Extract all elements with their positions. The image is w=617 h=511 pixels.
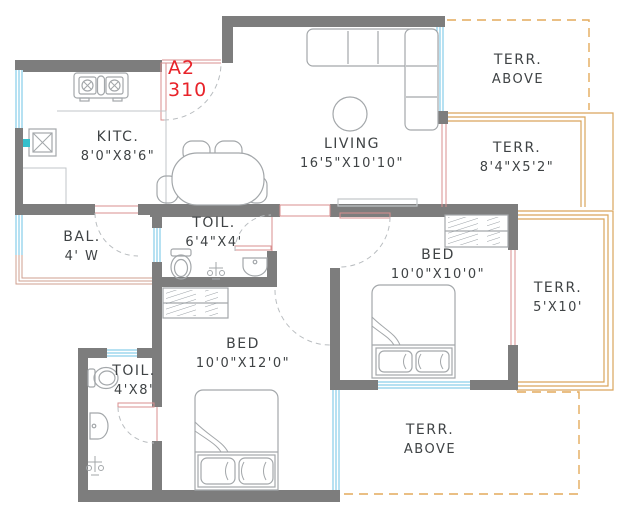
room-label-bed-second: BED 10'0"X10'0" bbox=[391, 247, 485, 283]
passage-opening-frame bbox=[280, 205, 330, 216]
wall-toilet-attached-top-right bbox=[137, 348, 153, 358]
wall-left-upper bbox=[15, 60, 23, 70]
room-name: KITC. bbox=[81, 129, 156, 147]
coffee-table bbox=[333, 97, 367, 131]
toilet-attached-washbasin bbox=[90, 413, 108, 439]
window-kitchen-left bbox=[15, 70, 23, 128]
living-terrace-opening bbox=[442, 124, 446, 207]
bed-master-furniture bbox=[195, 390, 278, 490]
window-toilet-attached-top bbox=[107, 348, 137, 358]
room-name: BED bbox=[391, 247, 485, 265]
window-bed-second-bottom bbox=[378, 381, 470, 389]
wall-living-top bbox=[222, 16, 445, 27]
bed-second-door-arc bbox=[340, 217, 390, 267]
kitchen-stove bbox=[74, 73, 128, 101]
room-dims: 8'0"X8'6" bbox=[81, 149, 156, 165]
dining-table bbox=[157, 141, 267, 205]
room-dims: 6'4"X4' bbox=[185, 235, 242, 251]
wall-bed-second-bottom-right bbox=[470, 380, 518, 390]
room-name: TOIL. bbox=[185, 215, 242, 233]
toilet-common-washbasin bbox=[243, 258, 267, 276]
room-label-terrace-right: TERR. 8'4"X5'2" bbox=[480, 140, 555, 176]
room-name: TOIL. bbox=[112, 363, 155, 381]
room-name: TERR. bbox=[533, 280, 583, 298]
toilet-common-shower-mixer bbox=[208, 262, 225, 279]
wall-toilet-attached-top-left bbox=[80, 348, 107, 358]
bed-second-furniture bbox=[372, 285, 455, 378]
toilet-common-wc bbox=[171, 249, 191, 279]
wall-kitchen-top bbox=[15, 60, 162, 72]
unit-number: 310 bbox=[168, 80, 207, 102]
room-dims: 10'0"X12'0" bbox=[196, 356, 290, 372]
wall-bed-second-bottom-left bbox=[332, 380, 378, 390]
kitchen-sink bbox=[23, 129, 56, 156]
wall-bed-second-left bbox=[330, 268, 340, 390]
wall-toilet-attached-left bbox=[78, 348, 88, 502]
room-label-balcony: BAL. 4' W bbox=[63, 229, 100, 265]
toilet-attached-door-arc bbox=[118, 407, 154, 443]
wall-right-upper bbox=[508, 217, 518, 250]
room-dims: 16'5"X10'10" bbox=[300, 156, 404, 172]
room-label-terrace-side: TERR. 5'X10' bbox=[533, 280, 583, 316]
room-dims: 4' W bbox=[63, 249, 100, 265]
balcony-door-arc bbox=[95, 213, 138, 256]
unit-code: A2 bbox=[168, 58, 207, 80]
terrace-above-bottom-border bbox=[342, 392, 579, 494]
room-dims: ABOVE bbox=[492, 72, 544, 88]
window-hall-central bbox=[152, 228, 162, 262]
room-dims: 4'X8' bbox=[112, 383, 155, 399]
room-name: TERR. bbox=[480, 140, 555, 158]
room-dims: 5'X10' bbox=[533, 300, 583, 316]
wall-toilet-attached-right-lower bbox=[152, 441, 162, 493]
wall-bottom bbox=[78, 490, 340, 502]
unit-label: A2 310 bbox=[168, 58, 207, 102]
wardrobe-common bbox=[163, 288, 228, 318]
room-dims: 10'0"X10'0" bbox=[391, 267, 485, 283]
room-name: BAL. bbox=[63, 229, 100, 247]
window-bed-master-terrace bbox=[332, 390, 341, 490]
room-label-terrace-above-top: TERR. ABOVE bbox=[492, 52, 544, 88]
window-balcony-left bbox=[15, 215, 23, 255]
balcony-door-lintel bbox=[95, 206, 138, 213]
wall-left-lower bbox=[15, 128, 23, 210]
room-dims: 8'4"X5'2" bbox=[480, 160, 555, 176]
room-label-living: LIVING 16'5"X10'10" bbox=[300, 136, 404, 172]
wall-toilet-common-right bbox=[267, 251, 277, 287]
room-label-bed-master: BED 10'0"X12'0" bbox=[196, 336, 290, 372]
room-name: TERR. bbox=[404, 422, 456, 440]
floorplan: A2 310 KITC. 8'0"X8'6" LIVING 16'5"X10'1… bbox=[0, 0, 617, 511]
room-label-kitchen: KITC. 8'0"X8'6" bbox=[81, 129, 156, 165]
wall-balcony-divider bbox=[15, 204, 95, 215]
wardrobe-bed-second bbox=[445, 215, 508, 247]
toilet-attached-door-leaf bbox=[118, 403, 154, 407]
room-name: LIVING bbox=[300, 136, 404, 154]
bed-terrace-opening bbox=[511, 250, 515, 345]
room-label-toilet-common: TOIL. 6'4"X4' bbox=[185, 215, 242, 251]
faucet-accent bbox=[23, 139, 30, 147]
room-name: BED bbox=[196, 336, 290, 354]
room-label-terrace-above-bottom: TERR. ABOVE bbox=[404, 422, 456, 458]
sofa bbox=[307, 29, 438, 130]
toilet-attached-shower-mixer bbox=[87, 456, 104, 475]
room-name: TERR. bbox=[492, 52, 544, 70]
room-label-toilet-attached: TOIL. 4'X8' bbox=[112, 363, 155, 399]
room-dims: ABOVE bbox=[404, 442, 456, 458]
